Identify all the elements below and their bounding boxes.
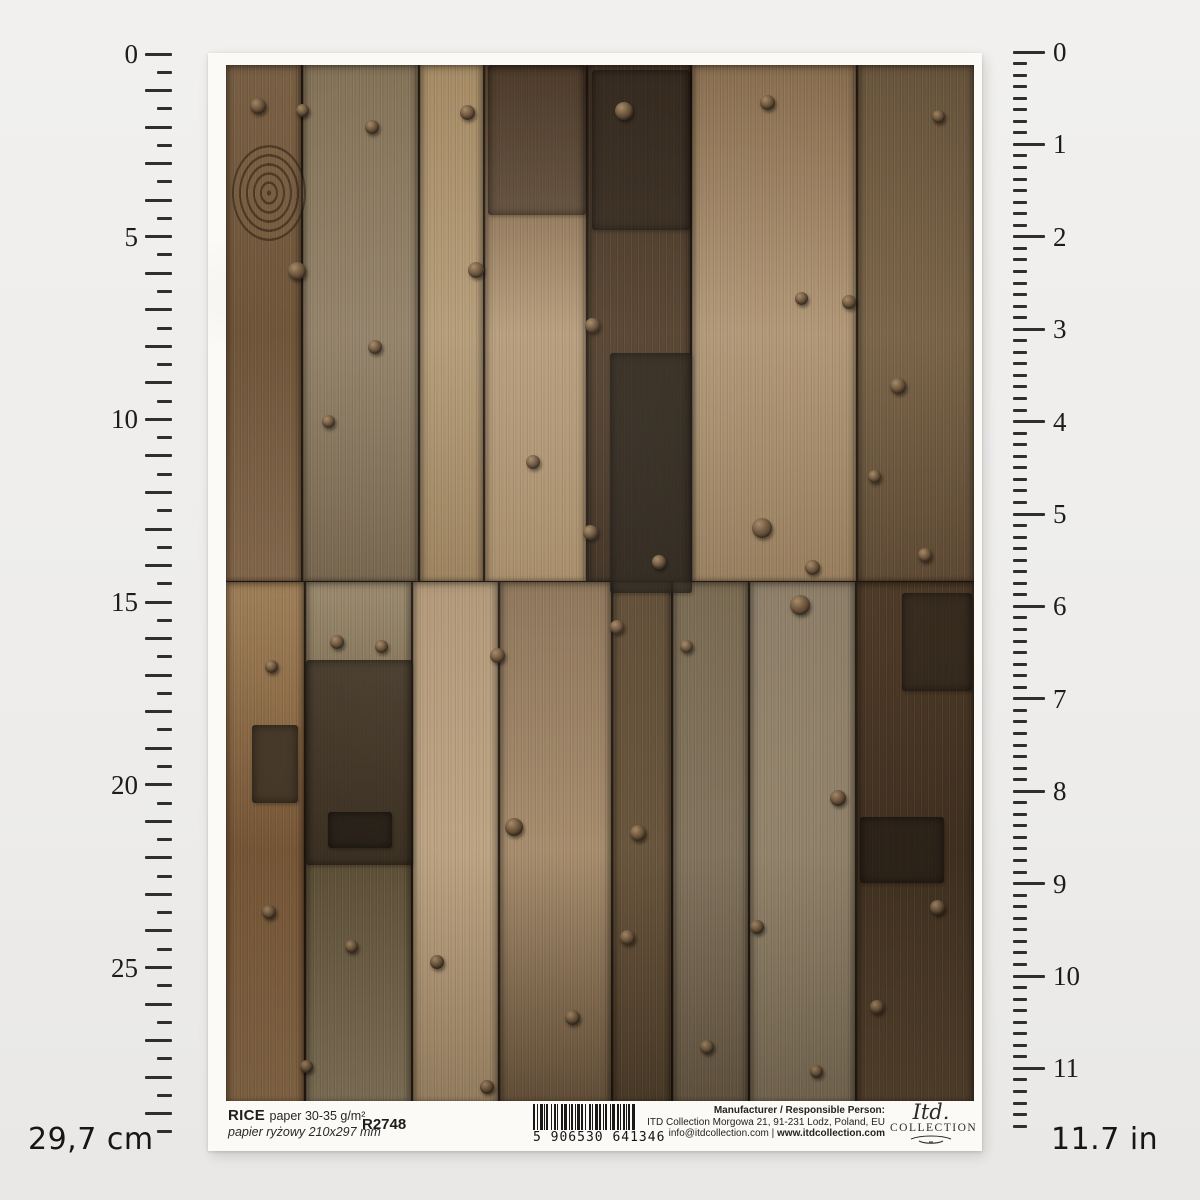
ruler-tick [1013,166,1027,169]
ruler-tick [1013,905,1027,908]
rivet-detail [265,660,278,673]
rivet-detail [468,262,484,278]
ruler-tick [1013,928,1027,931]
ruler-tick [145,637,172,640]
ruler-tick [1013,328,1045,331]
rivet-detail [610,620,624,634]
barcode-bar [589,1104,591,1130]
ruler-tick [145,893,172,896]
barcode-bar [626,1104,627,1130]
rivet-detail [250,98,266,114]
ruler-tick [1013,120,1027,123]
ruler-tick [1013,420,1045,423]
ruler-tick [1013,1032,1027,1035]
metal-plate-detail [592,70,690,230]
barcode-bar [544,1104,545,1130]
ruler-tick [1013,374,1027,377]
ruler-tick [157,436,172,439]
ruler-tick [1013,270,1027,273]
manufacturer-info: Manufacturer / Responsible Person: ITD C… [647,1105,885,1140]
ruler-tick [157,473,172,476]
contact-separator: | [772,1128,775,1139]
ruler-tick [1013,998,1027,1001]
ruler-tick [1013,489,1027,492]
barcode-bar [628,1104,630,1130]
ruler-tick [145,1112,172,1115]
ruler-tick [145,710,172,713]
ruler-tick [1013,501,1027,504]
ruler-tick [1013,305,1027,308]
ruler-number: 8 [1053,776,1067,806]
ruler-tick [1013,1067,1045,1070]
barcode-bars [533,1104,639,1130]
rivet-detail [583,525,598,540]
ruler-tick [1013,385,1027,388]
ruler-tick [1013,97,1027,100]
ruler-number: 15 [76,587,138,617]
ruler-tick [145,272,172,275]
product-info: RICE paper 30-35 g/m² papier ryżowy 210x… [228,1108,381,1140]
rivet-detail [365,120,379,134]
rivet-detail [630,825,646,841]
ruler-tick [157,1094,172,1097]
ruler-tick [1013,697,1045,700]
rivet-detail [930,900,945,915]
ruler-tick [157,728,172,731]
ruler-tick [145,199,172,202]
rivet-detail [932,110,945,123]
ruler-tick [1013,455,1027,458]
rivet-detail [262,905,276,919]
ruler-number: 6 [1053,591,1067,621]
ruler-tick [1013,720,1027,723]
ruler-number: 25 [76,953,138,983]
barcode-bar [599,1104,601,1130]
ruler-tick [1013,409,1027,412]
wood-plank [858,65,974,581]
ruler-tick [1013,628,1027,631]
ruler-tick [145,674,172,677]
ruler-tick [1013,975,1045,978]
ruler-tick [1013,605,1045,608]
ruler-tick [1013,963,1027,966]
ruler-tick [145,820,172,823]
ruler-tick [1013,513,1045,516]
ruler-tick [157,144,172,147]
ruler-tick [1013,432,1027,435]
rivet-detail [300,1060,313,1073]
barcode-bar [603,1104,604,1130]
wood-plank [226,582,306,1101]
ruler-tick [157,838,172,841]
rivet-detail [760,95,775,110]
ruler-tick [145,1039,172,1042]
ruler-tick [1013,593,1027,596]
ruler-tick [157,107,172,110]
rivet-detail [870,1000,884,1014]
ruler-tick [145,235,172,238]
ruler-tick [157,875,172,878]
rivet-detail [700,1040,714,1054]
rivet-detail [830,790,846,806]
ruler-tick [1013,778,1027,781]
ruler-tick [1013,1113,1027,1116]
ruler-number: 5 [1053,499,1067,529]
ruler-tick [1013,478,1027,481]
ruler-tick [1013,1090,1027,1093]
ruler-tick [145,381,172,384]
ruler-number: 1 [1053,129,1067,159]
ruler-tick [1013,189,1027,192]
rivet-detail [680,640,693,653]
ruler-number: 3 [1053,314,1067,344]
barcode-bar [632,1104,635,1130]
rivet-detail [810,1065,823,1078]
rivet-detail [918,548,932,562]
barcode-bar [620,1104,621,1130]
ruler-tick [1013,154,1027,157]
ruler-tick [1013,570,1027,573]
ruler-number: 9 [1053,869,1067,899]
barcode-bar [551,1104,552,1130]
ruler-tick [1013,1009,1027,1012]
ruler-tick [157,765,172,768]
wood-plank [692,65,858,581]
ruler-tick [145,783,172,786]
ruler-tick [1013,755,1027,758]
ruler-number: 10 [76,404,138,434]
ruler-tick [1013,744,1027,747]
rivet-detail [790,595,810,615]
barcode-bar [623,1104,625,1130]
wood-plank [750,582,857,1101]
barcode-bar [569,1104,570,1130]
barcode-bar [540,1104,543,1130]
ruler-tick [1013,282,1027,285]
rivet-detail [842,295,856,309]
ruler-tick [1013,582,1027,585]
ruler-tick [157,1130,172,1133]
ruler-tick [1013,986,1027,989]
ruler-tick [157,509,172,512]
ruler-tick [1013,859,1027,862]
ruler-tick [1013,351,1027,354]
ruler-tick [1013,801,1027,804]
rivet-detail [322,415,335,428]
ruler-tick [1013,1078,1027,1081]
barcode-bar [585,1104,586,1130]
ruler-tick [145,966,172,969]
ruler-tick [145,601,172,604]
ruler-tick [145,89,172,92]
contact-website: www.itdcollection.com [777,1128,885,1139]
barcode-bar [571,1104,573,1130]
ruler-tick [1013,709,1027,712]
barcode-bar [557,1104,558,1130]
itd-collection-logo: Itd. COLLECTION [890,1102,972,1145]
barcode-bar [577,1104,580,1130]
ruler-number: 0 [76,39,138,69]
wood-plank [226,65,303,581]
rivet-detail [375,640,388,653]
ruler-tick [1013,74,1027,77]
ruler-tick [157,1021,172,1024]
manufacturer-contact: info@itdcollection.com | www.itdcollecti… [647,1128,885,1140]
ruler-tick [157,546,172,549]
logo-flourish-icon [909,1135,953,1145]
ruler-tick [1013,536,1027,539]
rivet-detail [288,262,306,280]
ruler-tick [145,53,172,56]
ruler-tick [1013,293,1027,296]
barcode-bar [605,1104,607,1130]
wood-knot-detail [232,145,306,241]
barcode-bar [595,1104,598,1130]
rivet-detail [620,930,635,945]
ruler-tick [1013,178,1027,181]
ruler-tick [1013,732,1027,735]
ruler-tick [1013,397,1027,400]
ruler-tick [1013,917,1027,920]
barcode-bar [546,1104,548,1130]
rivet-detail [490,648,505,663]
rivet-detail [330,635,344,649]
ruler-tick [145,491,172,494]
ruler-tick [1013,882,1045,885]
rivet-detail [460,105,475,120]
barcode-bar [610,1104,611,1130]
ruler-tick [1013,616,1027,619]
ruler-number: 20 [76,770,138,800]
ruler-tick [145,418,172,421]
contact-email: info@itdcollection.com [669,1128,769,1139]
barcode: 5 906530 641346 [533,1104,639,1145]
ruler-tick [1013,201,1027,204]
barcode-digits: 5 906530 641346 [533,1130,639,1145]
ruler-tick [157,253,172,256]
ruler-tick [1013,258,1027,261]
barcode-bar [537,1104,538,1130]
ruler-tick [1013,940,1027,943]
ruler-tick [1013,108,1027,111]
ruler-number: 4 [1053,407,1067,437]
ruler-tick [1013,85,1027,88]
ruler-tick [145,162,172,165]
ruler-number: 10 [1053,961,1080,991]
product-code: R2748 [362,1116,406,1133]
rivet-detail [526,455,540,469]
ruler-inch-unit-label: 11.7 in [1051,1122,1158,1157]
ruler-tick [1013,143,1045,146]
ruler-tick [1013,790,1045,793]
ruler-tick [145,856,172,859]
ruler-tick [1013,651,1027,654]
ruler-tick [1013,674,1027,677]
metal-plate-detail [610,353,692,593]
rivet-detail [805,560,820,575]
metal-plate-detail [902,593,972,691]
ruler-tick [157,290,172,293]
ruler-tick [157,692,172,695]
barcode-bar [575,1104,576,1130]
ruler-tick [157,619,172,622]
ruler-tick [1013,836,1027,839]
ruler-cm-unit-label: 29,7 cm [28,1122,154,1157]
rivet-detail [565,1010,580,1025]
ruler-number: 5 [76,222,138,252]
rivet-detail [615,102,633,120]
ruler-tick [1013,847,1027,850]
rivet-detail [890,378,906,394]
ruler-tick [1013,640,1027,643]
product-spec: paper 30-35 g/m² [270,1109,366,1123]
ruler-tick [157,327,172,330]
ruler-tick [1013,686,1027,689]
rivet-detail [480,1080,494,1094]
rivet-detail [585,318,600,333]
ruler-tick [1013,559,1027,562]
wood-plank [500,582,613,1101]
rivet-detail [345,940,358,953]
ruler-tick [1013,224,1027,227]
barcode-bar [564,1104,567,1130]
ruler-tick [1013,894,1027,897]
ruler-tick [1013,247,1027,250]
metal-plate-detail [252,725,298,803]
ruler-tick [1013,1102,1027,1105]
ruler-tick [1013,51,1045,54]
metal-plate-detail [328,812,392,848]
wood-plank [303,65,420,581]
ruler-tick [145,747,172,750]
rivet-detail [750,920,764,934]
wood-plank [420,65,485,581]
wood-plank [673,582,750,1101]
ruler-tick [157,911,172,914]
ruler-number: 0 [1053,37,1067,67]
ruler-tick [157,984,172,987]
ruler-tick [1013,339,1027,342]
ruler-tick [157,948,172,951]
product-spec-polish: papier ryżowy 210x297 mm [228,1124,381,1140]
barcode-bar [561,1104,563,1130]
ruler-tick [157,1057,172,1060]
ruler-tick [1013,131,1027,134]
ruler-tick [1013,1021,1027,1024]
rivet-detail [652,555,666,569]
ruler-number: 11 [1053,1053,1079,1083]
manufacturer-address: ITD Collection Morgowa 21, 91-231 Lodz, … [647,1117,885,1129]
ruler-tick [1013,524,1027,527]
ruler-tick [145,1003,172,1006]
ruler-tick [145,308,172,311]
ruler-tick [157,655,172,658]
metal-plate-detail [488,65,586,215]
ruler-tick [1013,871,1027,874]
ruler-tick [1013,951,1027,954]
ruler-tick [1013,1055,1027,1058]
ruler-tick [1013,466,1027,469]
wood-plank [413,582,500,1101]
ruler-tick [145,1076,172,1079]
ruler-tick [1013,824,1027,827]
ruler-tick [157,71,172,74]
ruler-tick [1013,443,1027,446]
wood-texture-image [226,65,974,1101]
manufacturer-heading: Manufacturer / Responsible Person: [647,1105,885,1117]
ruler-tick [1013,62,1027,65]
rivet-detail [505,818,523,836]
ruler-number: 7 [1053,684,1067,714]
ruler-tick [145,345,172,348]
ruler-tick [1013,235,1045,238]
ruler-tick [157,582,172,585]
ruler-tick [1013,663,1027,666]
ruler-tick [157,180,172,183]
rice-paper-sheet: RICE paper 30-35 g/m² papier ryżowy 210x… [208,53,982,1151]
rivet-detail [868,470,881,483]
barcode-bar [617,1104,619,1130]
wood-plank [613,582,673,1101]
ruler-tick [157,400,172,403]
barcode-bar [612,1104,615,1130]
ruler-tick [157,802,172,805]
ruler-tick [145,126,172,129]
metal-plate-detail [860,817,944,883]
ruler-tick [157,363,172,366]
barcode-bar [592,1104,593,1130]
ruler-tick [1013,813,1027,816]
ruler-tick [1013,1125,1027,1128]
ruler-tick [157,217,172,220]
ruler-tick [1013,316,1027,319]
product-photo-canvas: 0510152025 01234567891011 29,7 cm 11.7 i… [0,0,1200,1200]
ruler-tick [1013,1044,1027,1047]
barcode-bar [554,1104,556,1130]
logo-name-text: COLLECTION [890,1122,972,1134]
rivet-detail [752,518,772,538]
rivet-detail [430,955,444,969]
ruler-tick [145,564,172,567]
rivet-detail [296,104,309,117]
ruler-tick [1013,362,1027,365]
ruler-tick [1013,547,1027,550]
ruler-tick [145,454,172,457]
ruler-number: 2 [1053,222,1067,252]
ruler-tick [145,929,172,932]
ruler-tick [1013,767,1027,770]
rivet-detail [368,340,382,354]
ruler-tick [145,528,172,531]
barcode-bar [581,1104,583,1130]
barcode-bar [533,1104,535,1130]
rivet-detail [795,292,808,305]
ruler-tick [1013,212,1027,215]
logo-script-text: Itd. [890,1102,972,1122]
product-name: RICE [228,1107,265,1124]
